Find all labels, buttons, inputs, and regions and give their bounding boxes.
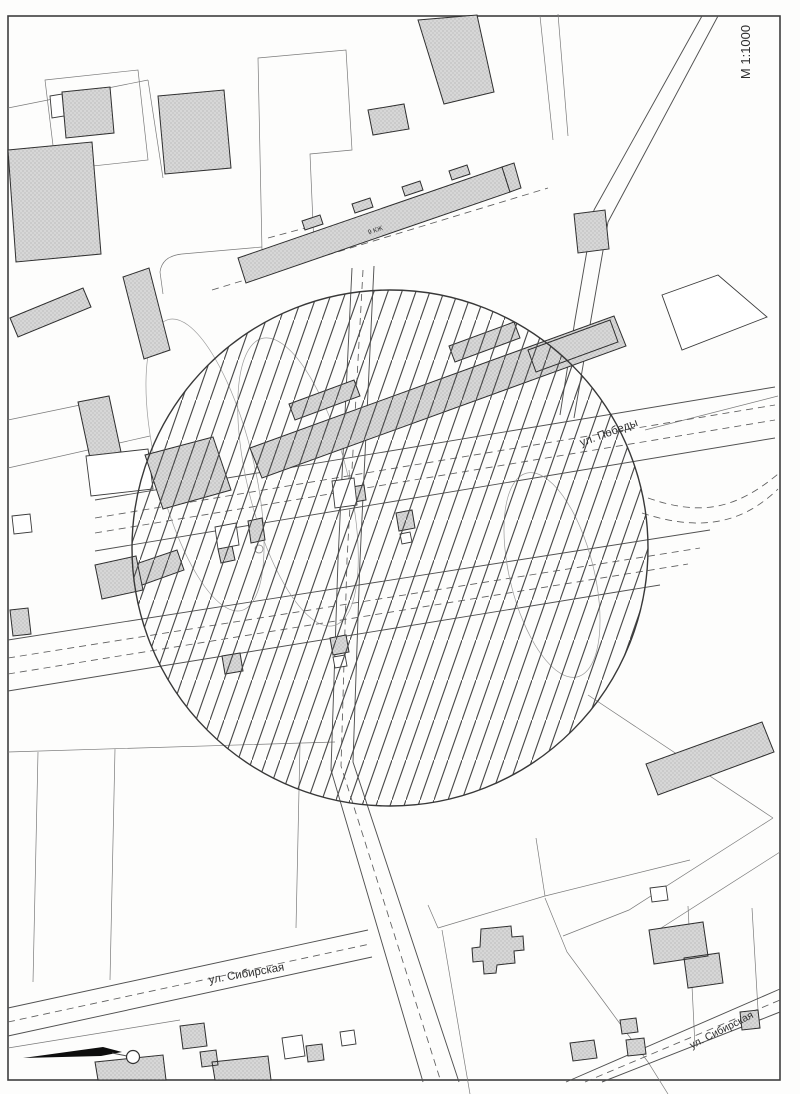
building-footprint [78, 396, 121, 458]
cross-shaped-building [472, 926, 524, 974]
survey-point-circle [127, 1051, 140, 1064]
parcel-outline [662, 275, 767, 350]
hatched-area-circle [132, 290, 648, 806]
building-footprint [368, 104, 409, 135]
parcel-line [540, 14, 568, 140]
street-label-sibirskaya-west: ул. Сибирская [208, 962, 285, 987]
building-footprint [646, 722, 774, 795]
building-footprint [10, 288, 91, 337]
building-annex [50, 94, 64, 118]
map-canvas: М 1:1000 ул. Победы ул. Сибирская ул. Си… [0, 0, 800, 1094]
building-footprint [62, 87, 114, 138]
small-buildings [10, 556, 143, 636]
building-footprint [418, 15, 494, 104]
road-centerline [642, 474, 778, 523]
scale-label: М 1:1000 [738, 25, 753, 79]
building-footprint [158, 90, 231, 174]
building-footprint [123, 268, 170, 359]
road-centerline [8, 944, 370, 1022]
arrow-line [112, 1053, 127, 1056]
building-footprint [8, 142, 101, 262]
building-footprint [574, 210, 609, 253]
scanned-map-sheet: М 1:1000 ул. Победы ул. Сибирская ул. Си… [0, 0, 800, 1094]
building-footprint [649, 922, 723, 988]
parcel-line [645, 396, 778, 430]
parcel-line [8, 1020, 180, 1048]
road-edge [594, 16, 718, 222]
street-label-sibirskaya-east: ул. Сибирская [688, 1009, 756, 1051]
road-sibirskaya-east-edges [566, 989, 780, 1082]
apartment-block-footprint [238, 167, 510, 283]
arrow-icon [23, 1047, 122, 1058]
